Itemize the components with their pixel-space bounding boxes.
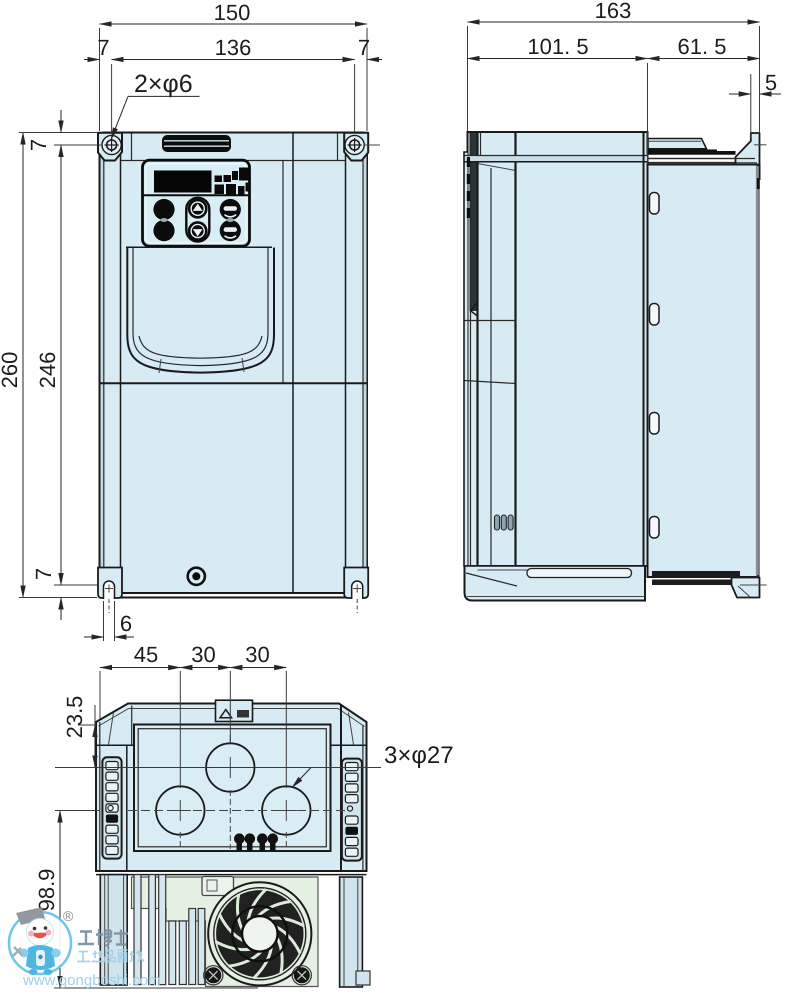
svg-text:www.gongboshi.com: www.gongboshi.com [22, 972, 161, 989]
svg-text:45: 45 [134, 642, 158, 667]
svg-text:101. 5: 101. 5 [527, 34, 588, 59]
svg-text:150: 150 [214, 0, 251, 25]
svg-text:136: 136 [215, 35, 252, 60]
svg-text:260: 260 [0, 352, 22, 389]
svg-text:7: 7 [31, 568, 56, 580]
svg-text:7: 7 [358, 35, 370, 60]
svg-text:3×φ27: 3×φ27 [384, 742, 454, 769]
svg-text:98.9: 98.9 [34, 869, 59, 912]
svg-text:7: 7 [26, 139, 51, 151]
svg-text:2×φ6: 2×φ6 [134, 70, 193, 98]
svg-text:5: 5 [765, 70, 777, 95]
svg-text:163: 163 [595, 0, 632, 23]
svg-text:246: 246 [35, 352, 60, 389]
svg-text:30: 30 [191, 642, 215, 667]
svg-text:30: 30 [245, 642, 269, 667]
svg-text:61. 5: 61. 5 [678, 34, 727, 59]
svg-text:6: 6 [120, 611, 132, 636]
svg-text:23.5: 23.5 [62, 696, 87, 739]
svg-text:®: ® [63, 908, 74, 924]
svg-text:7: 7 [97, 35, 109, 60]
